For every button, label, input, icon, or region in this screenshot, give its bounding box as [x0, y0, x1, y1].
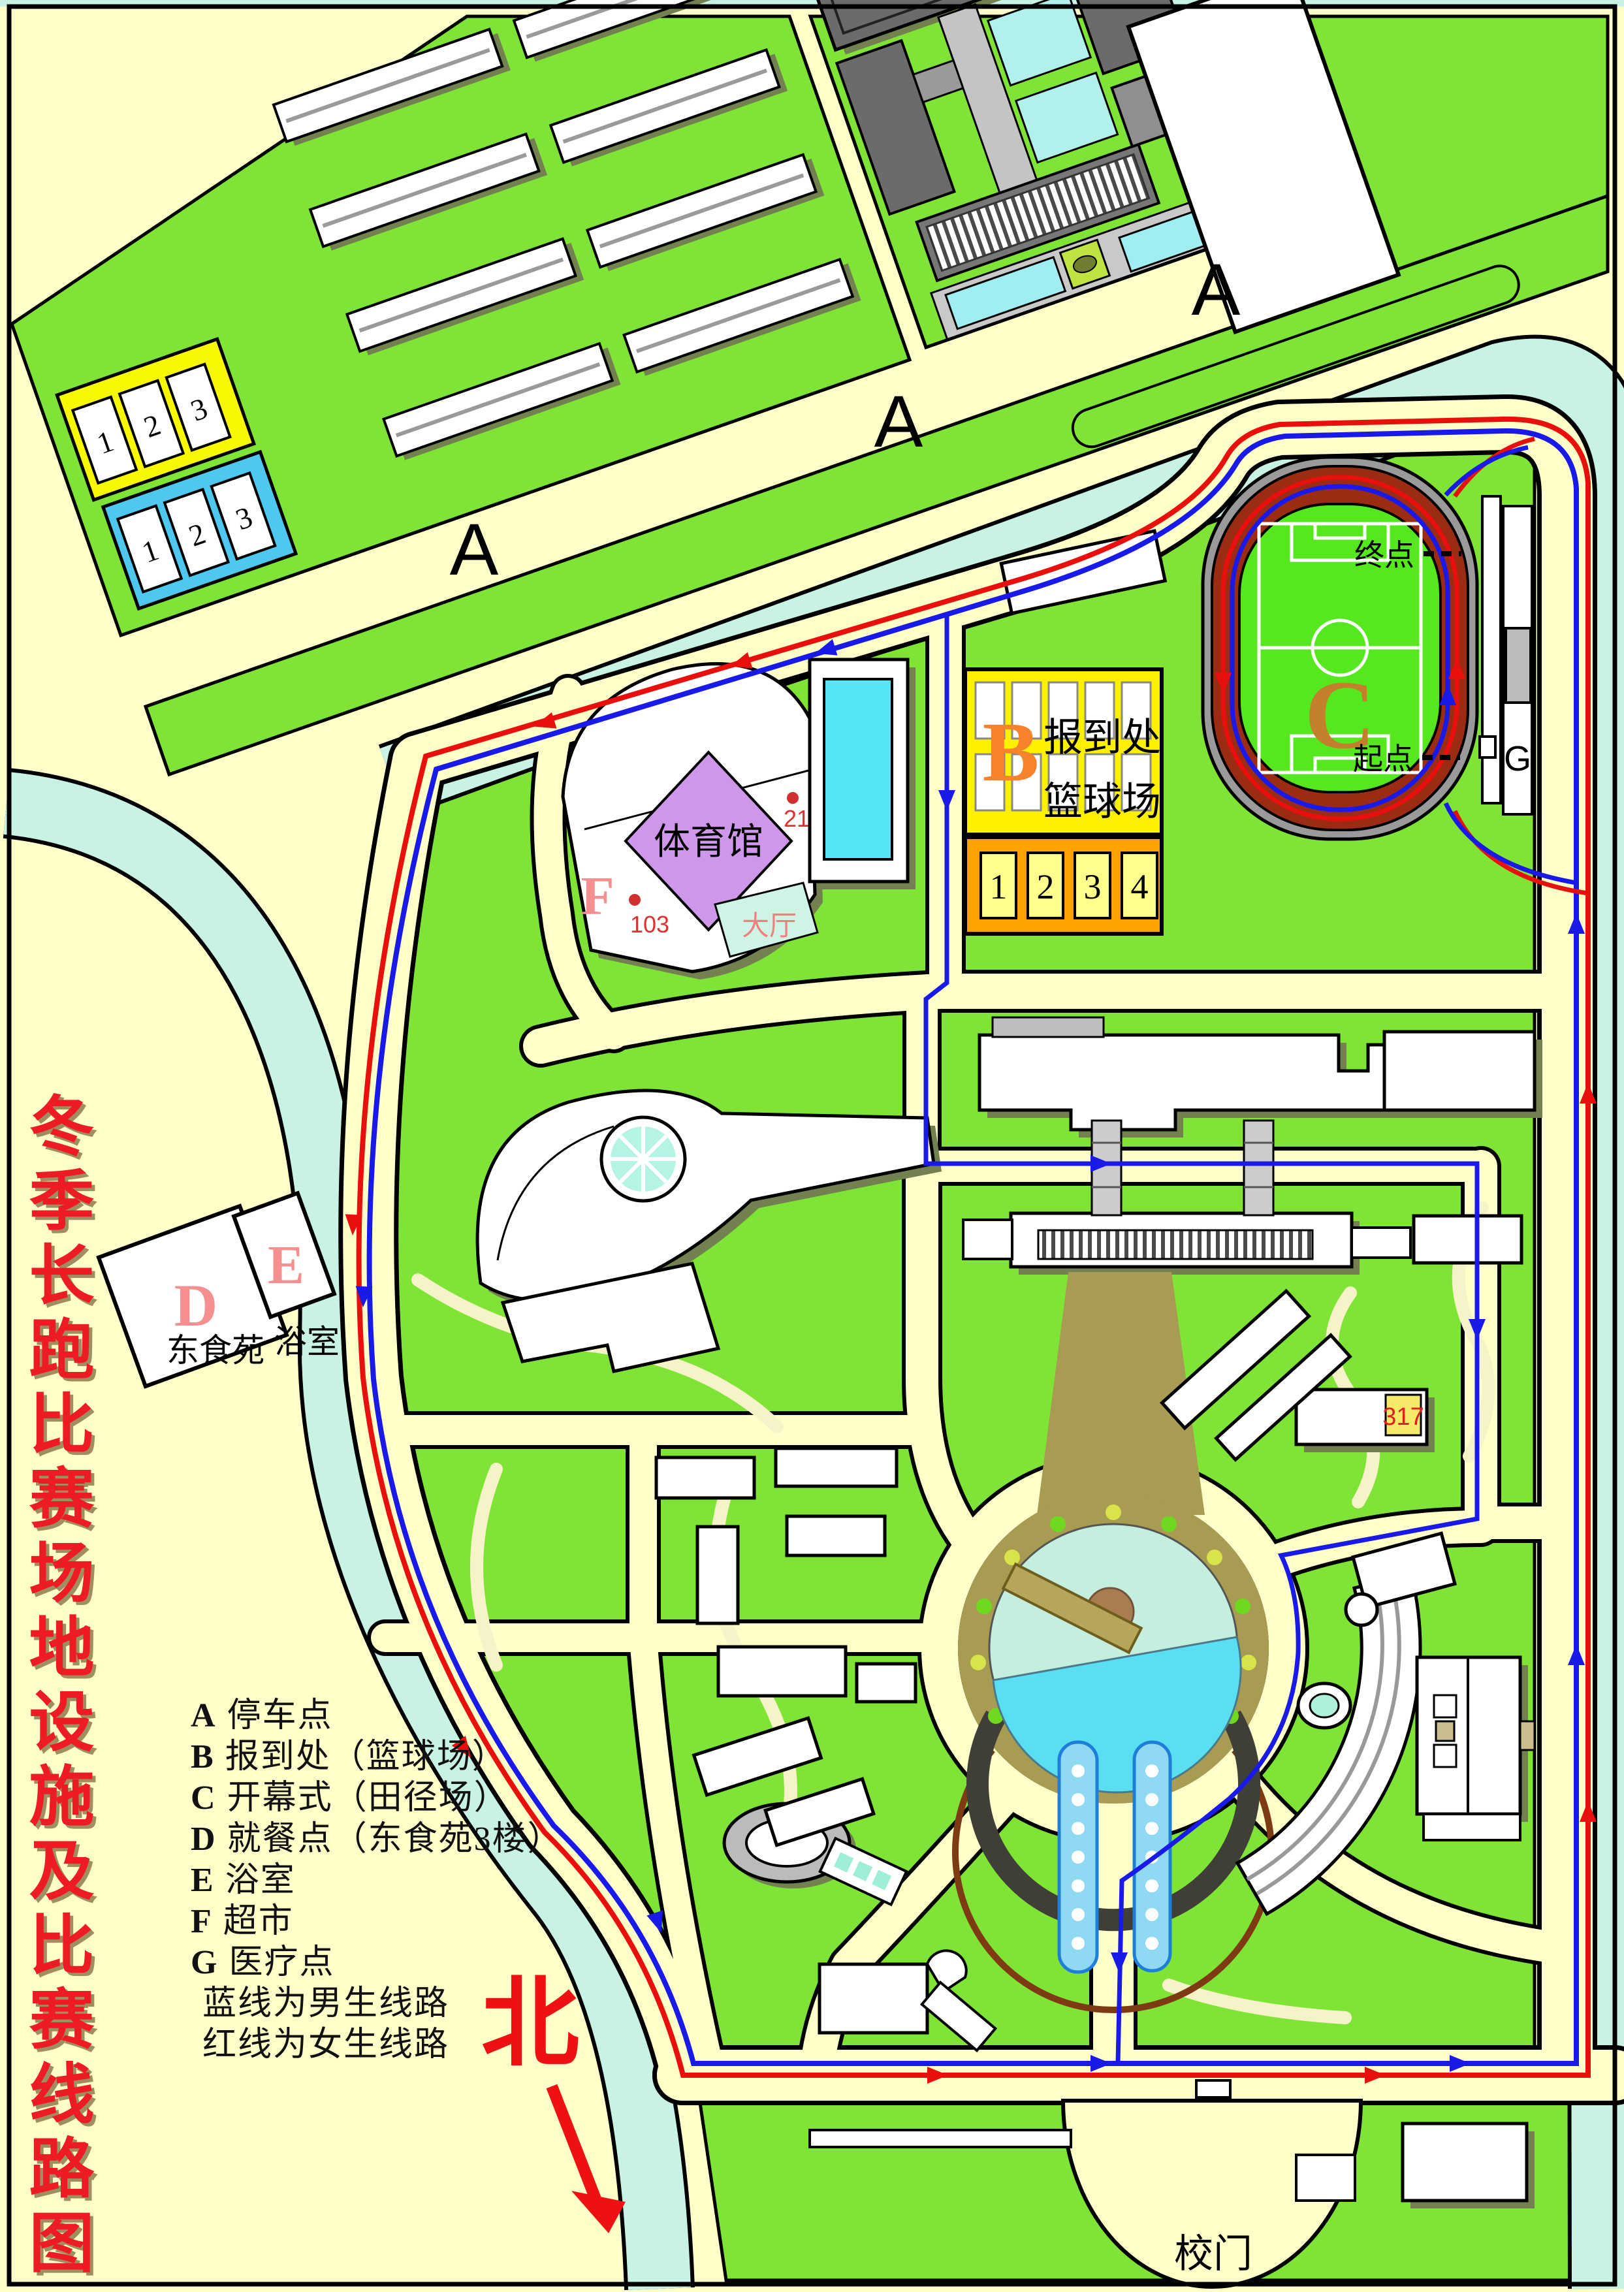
room-103: 103 [630, 911, 669, 938]
legend-row-e: E浴室 [191, 1860, 563, 1901]
legend-row-c: C开幕式（田径场） [191, 1777, 563, 1819]
legend-key-c: C [191, 1777, 215, 1819]
legend-row-g: G医疗点 [191, 1942, 563, 1983]
swimming-pool-building [810, 660, 915, 889]
legend-key-a: A [191, 1695, 215, 1736]
basketball-block: B 报到处 篮球场 1 2 3 4 [965, 669, 1162, 934]
gym-complex: 体育馆 大厅 F 103 214 [563, 664, 823, 979]
legend-row-f: F超市 [191, 1901, 563, 1942]
legend-row-red: 红线为女生线路 [191, 2024, 563, 2065]
label-317: 317 [1382, 1403, 1424, 1431]
finish-label: 终点 [1354, 538, 1414, 572]
legend-label-a: 停车点 [227, 1697, 333, 1734]
legend-label-e: 浴室 [225, 1862, 296, 1899]
start-label: 起点 [1353, 742, 1413, 776]
legend-key-f: F [191, 1901, 212, 1942]
checkin-label: 报到处 [1043, 716, 1161, 759]
legend-label-red: 红线为女生线路 [202, 2026, 449, 2063]
legend-label-c: 开幕式（田径场） [227, 1779, 509, 1817]
parking-label-a2: A [874, 381, 923, 462]
bath-letter: E [268, 1235, 304, 1296]
hall-label: 大厅 [742, 910, 797, 941]
legend-row-a: A停车点 [191, 1695, 563, 1736]
legend-label-f: 超市 [223, 1903, 294, 1940]
court-2: 2 [1037, 867, 1055, 906]
parking-label-a1: A [450, 509, 499, 590]
legend-label-d: 就餐点（东食苑3楼） [227, 1821, 563, 1858]
court-3: 3 [1084, 867, 1102, 906]
legend-row-d: D就餐点（东食苑3楼） [191, 1819, 563, 1860]
gym-label: 体育馆 [654, 821, 763, 862]
supermarket-letter: F [581, 866, 614, 927]
legend-key-d: D [191, 1819, 215, 1860]
dining-letter: D [174, 1272, 217, 1339]
dining-label: 东食苑 [167, 1332, 264, 1369]
legend-label-g: 医疗点 [229, 1944, 334, 1981]
room-103-dot [629, 894, 641, 906]
legend-key-g: G [191, 1942, 217, 1983]
room-214-dot [787, 792, 799, 804]
legend-label-b: 报到处（篮球场） [225, 1738, 507, 1775]
bath-label: 浴室 [274, 1324, 340, 1360]
legend-key-e: E [191, 1860, 214, 1901]
legend-key-b: B [191, 1736, 214, 1777]
basketball-letter: B [983, 705, 1040, 799]
court-4: 4 [1131, 867, 1149, 906]
legend-label-blue: 蓝线为男生线路 [202, 1985, 449, 2022]
stadium: C 终点 起点 G [1203, 457, 1532, 839]
map-title: 冬季长跑比赛场地设施及比赛线路图 [22, 1092, 88, 2283]
campus-map-page: 1 2 3 1 2 3 [0, 0, 1624, 2292]
legend-row-b: B报到处（篮球场） [191, 1736, 563, 1777]
medical-label: G [1504, 739, 1531, 778]
legend-row-blue: 蓝线为男生线路 [191, 1983, 563, 2024]
gate-median [1196, 2080, 1230, 2097]
legend: A停车点 B报到处（篮球场） C开幕式（田径场） D就餐点（东食苑3楼） E浴室… [191, 1695, 563, 2065]
building-317: 317 [1296, 1390, 1435, 1452]
court-label: 篮球场 [1043, 780, 1161, 823]
building-east-of-complex [1384, 1032, 1542, 1118]
parking-label-a3: A [1192, 249, 1241, 330]
gate-label: 校门 [1174, 2232, 1252, 2276]
east-building [1417, 1657, 1535, 1840]
court-1: 1 [990, 867, 1008, 906]
